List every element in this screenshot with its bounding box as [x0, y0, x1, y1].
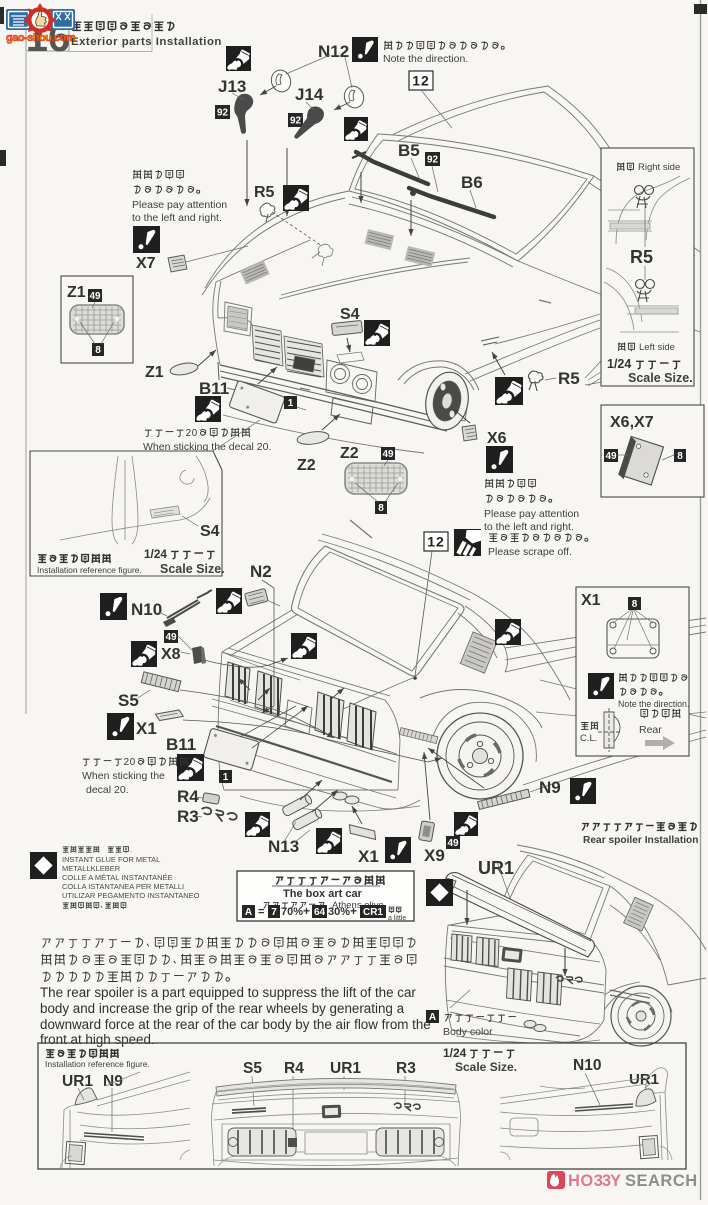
svg-text:HO33Y: HO33Y — [568, 1172, 622, 1190]
svg-text:49: 49 — [382, 449, 394, 460]
svg-text:decal 20.: decal 20. — [86, 784, 129, 796]
svg-text:Z2: Z2 — [297, 457, 316, 474]
svg-text:B11: B11 — [199, 379, 229, 398]
svg-text:X8: X8 — [161, 646, 181, 663]
svg-text:When sticking the: When sticking the — [82, 770, 165, 782]
svg-text:R3: R3 — [177, 807, 199, 826]
svg-text:64: 64 — [314, 907, 326, 918]
svg-text:1/24: 1/24 — [607, 357, 631, 371]
svg-text:B6: B6 — [461, 173, 483, 192]
svg-text:R4: R4 — [177, 787, 199, 806]
svg-text:The rear spoiler is a part equ: The rear spoiler is a part equipped to s… — [40, 985, 416, 1000]
svg-text:R4: R4 — [284, 1060, 304, 1077]
svg-text:N10: N10 — [573, 1057, 601, 1074]
svg-text:downward force at the rear of: downward force at the rear of the car bo… — [40, 1017, 431, 1032]
svg-text:X1: X1 — [358, 847, 379, 866]
svg-text:Note the direction.: Note the direction. — [383, 53, 468, 65]
svg-text:Left side: Left side — [639, 342, 675, 353]
svg-text:Please scrape off.: Please scrape off. — [488, 546, 572, 558]
svg-text:METALLKLEBER: METALLKLEBER — [62, 864, 121, 873]
svg-text:1: 1 — [288, 398, 294, 409]
svg-text:Please pay attention: Please pay attention — [484, 508, 579, 520]
svg-text:12: 12 — [427, 534, 445, 550]
svg-text:CR1: CR1 — [363, 907, 383, 918]
svg-text:=: = — [258, 906, 264, 918]
svg-text:B5: B5 — [398, 141, 420, 160]
svg-text:+: + — [303, 904, 310, 918]
svg-text:front at high speed.: front at high speed. — [40, 1032, 155, 1047]
svg-text:Rear spoiler Installation: Rear spoiler Installation — [583, 835, 699, 846]
svg-text:Exterior parts Installation: Exterior parts Installation — [71, 36, 222, 48]
svg-text:N9: N9 — [103, 1073, 123, 1090]
svg-text:49: 49 — [447, 838, 459, 849]
svg-text:Z2: Z2 — [340, 445, 359, 462]
svg-text:1/24: 1/24 — [443, 1046, 467, 1060]
svg-text:R5: R5 — [630, 247, 653, 267]
svg-text:X9: X9 — [424, 846, 445, 865]
svg-text:92: 92 — [217, 108, 229, 119]
svg-text:A: A — [429, 1012, 436, 1023]
svg-text:Note the direction.: Note the direction. — [618, 699, 689, 709]
svg-text:X6: X6 — [487, 430, 507, 447]
svg-text:0: 0 — [192, 428, 198, 439]
svg-text:.: . — [130, 847, 132, 854]
svg-text:N9: N9 — [539, 778, 561, 797]
svg-text:gao-shou.com: gao-shou.com — [6, 32, 76, 44]
svg-text:to the left and right.: to the left and right. — [484, 521, 574, 533]
svg-text:COLLE A MÉTAL INSTANTANÉE: COLLE A MÉTAL INSTANTANÉE — [62, 873, 173, 882]
svg-text:N10: N10 — [131, 600, 162, 619]
svg-text:A: A — [245, 907, 252, 918]
svg-text:Please pay attention: Please pay attention — [132, 199, 227, 211]
svg-text:70%: 70% — [281, 906, 303, 918]
svg-text:X1: X1 — [136, 719, 157, 738]
svg-text:S4: S4 — [200, 523, 220, 540]
svg-text:12: 12 — [412, 73, 430, 89]
svg-text:J14: J14 — [295, 85, 324, 104]
svg-text:The box art car: The box art car — [283, 888, 363, 900]
svg-text:N2: N2 — [250, 562, 272, 581]
svg-text:Installation reference figure.: Installation reference figure. — [37, 565, 142, 575]
svg-text:body and increase the grip of: body and increase the grip of the rear w… — [40, 1001, 405, 1016]
svg-text:Rear: Rear — [639, 724, 662, 736]
svg-text:8: 8 — [95, 345, 101, 356]
svg-text:2: 2 — [186, 428, 191, 439]
svg-text:8: 8 — [378, 503, 384, 514]
svg-text:92: 92 — [290, 116, 302, 127]
svg-text:N13: N13 — [268, 837, 299, 856]
svg-text:Z1: Z1 — [67, 284, 86, 301]
svg-text:X6,X7: X6,X7 — [610, 414, 654, 431]
svg-text:COLLA ISTANTANEA PER METALLI: COLLA ISTANTANEA PER METALLI — [62, 882, 184, 891]
svg-text:C.L.: C.L. — [580, 733, 597, 744]
svg-text:Scale Size.: Scale Size. — [628, 371, 693, 385]
svg-text:30%: 30% — [328, 906, 350, 918]
svg-text:to the left and right.: to the left and right. — [132, 212, 222, 224]
svg-text:B11: B11 — [166, 735, 196, 754]
svg-text:+: + — [350, 904, 357, 918]
svg-text:Scale Size.: Scale Size. — [455, 1060, 517, 1074]
svg-text:49: 49 — [89, 291, 101, 302]
svg-text:X1: X1 — [581, 592, 601, 609]
svg-text:0: 0 — [130, 757, 136, 768]
svg-text:7: 7 — [271, 907, 277, 918]
svg-text:UTILIZAR PEGAMENTO INSTANTANEO: UTILIZAR PEGAMENTO INSTANTANEO — [62, 891, 200, 900]
svg-text:2: 2 — [124, 757, 129, 768]
svg-text:Installation reference figure.: Installation reference figure. — [45, 1059, 150, 1069]
svg-text:UR1: UR1 — [330, 1060, 361, 1077]
svg-text:1: 1 — [223, 772, 229, 783]
svg-text:R3: R3 — [396, 1060, 416, 1077]
svg-text:Right side: Right side — [638, 162, 680, 173]
svg-text:INSTANT GLUE FOR METAL: INSTANT GLUE FOR METAL — [62, 855, 160, 864]
svg-text:R5: R5 — [558, 369, 580, 388]
svg-text:Z1: Z1 — [145, 364, 164, 381]
svg-text:S5: S5 — [118, 691, 139, 710]
svg-text:8: 8 — [677, 451, 683, 462]
svg-text:S5: S5 — [243, 1060, 262, 1077]
svg-text:49: 49 — [605, 451, 617, 462]
svg-text:UR1: UR1 — [478, 858, 514, 878]
svg-text:a little: a little — [388, 915, 406, 922]
svg-text:8: 8 — [632, 599, 638, 610]
svg-text:1/24: 1/24 — [144, 547, 167, 561]
svg-text:Scale Size.: Scale Size. — [160, 562, 225, 576]
svg-text:R5: R5 — [254, 184, 275, 201]
svg-text:X7: X7 — [136, 255, 156, 272]
svg-text:Body color: Body color — [443, 1026, 493, 1038]
svg-text:49: 49 — [165, 632, 177, 643]
svg-text:92: 92 — [427, 155, 439, 166]
svg-text:SEARCH: SEARCH — [625, 1172, 698, 1190]
